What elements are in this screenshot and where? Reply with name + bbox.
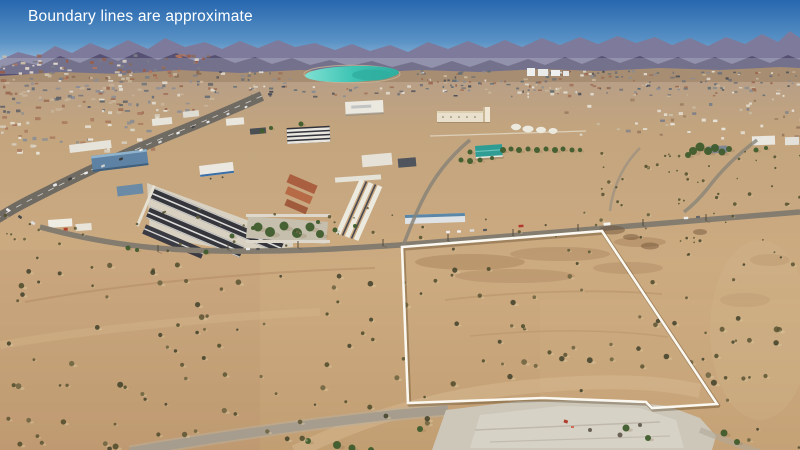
specks-town-left-lower-speck — [19, 93, 23, 95]
specks-town-near-left-speck — [34, 145, 37, 147]
specks-town-left-upper-speck — [173, 73, 177, 76]
shrub — [645, 228, 647, 230]
specks-town-far-speck — [550, 93, 554, 95]
shrub — [534, 364, 538, 368]
specks-town-far-speck — [216, 76, 219, 78]
specks-town-far-speck — [568, 95, 571, 98]
shrub — [263, 323, 266, 326]
specks-town-far-speck — [649, 74, 653, 76]
specks-town-far-speck — [272, 79, 276, 81]
specks-town-left-lower-speck — [163, 93, 168, 95]
shrub — [587, 357, 593, 363]
specks-town-far-speck — [522, 91, 524, 93]
specks-town-near-left-speck — [18, 137, 21, 139]
specks-houses-right-speck — [692, 112, 696, 115]
tree — [353, 224, 357, 228]
shrub — [222, 408, 227, 413]
specks-town-far-speck — [789, 80, 791, 82]
specks-town-far-speck — [570, 84, 574, 87]
tree — [623, 425, 630, 432]
specks-town-left-lower-speck — [138, 89, 142, 91]
shrub — [547, 350, 551, 354]
pond-deep-water — [352, 70, 392, 81]
shrub — [774, 167, 776, 169]
specks-houses-right-speck — [782, 134, 785, 137]
vehicle — [603, 222, 610, 225]
specks-town-left-upper-speck — [154, 69, 157, 72]
specks-town-left-lower-speck — [99, 99, 104, 101]
shrub — [196, 216, 199, 219]
specks-town-far-speck — [733, 72, 736, 73]
specks-town-far-speck — [752, 81, 755, 83]
specks-town-far-speck — [763, 95, 766, 97]
specks-houses-right-speck — [565, 111, 569, 114]
tree — [509, 147, 514, 152]
shrub — [325, 362, 330, 367]
specks-town-far-speck — [708, 87, 711, 90]
shrub — [117, 382, 123, 388]
shrub — [74, 227, 77, 230]
specks-town-near-left-speck — [2, 116, 7, 119]
specks-town-left-upper-speck — [127, 70, 131, 73]
specks-town-left-lower-speck — [156, 109, 158, 111]
shrub — [336, 300, 339, 303]
specks-town-left-upper-speck — [39, 70, 43, 73]
specks-town-far-speck — [263, 86, 265, 88]
specks-town-far-speck — [755, 72, 758, 74]
specks-town-far-speck — [302, 91, 305, 93]
tree — [734, 439, 740, 445]
specks-town-far-speck — [269, 91, 273, 93]
shrub — [762, 239, 764, 241]
shrub — [706, 372, 712, 378]
shrub — [687, 253, 690, 256]
shrub — [368, 281, 374, 287]
specks-houses-right-speck — [679, 112, 683, 115]
shrub — [733, 202, 737, 206]
red-debris — [571, 426, 574, 428]
shrub — [678, 203, 680, 205]
shrub — [265, 429, 269, 433]
specks-town-far-speck — [738, 73, 741, 74]
specks-houses-right-speck — [709, 103, 712, 106]
shrub — [179, 243, 182, 246]
shrub — [720, 327, 725, 332]
specks-town-left-lower-speck — [106, 87, 109, 90]
casino-tower — [551, 70, 560, 76]
shrub — [693, 242, 695, 244]
shrub — [59, 384, 62, 387]
specks-houses-right-speck — [747, 108, 750, 110]
specks-houses-right-speck — [749, 103, 752, 105]
specks-town-far-speck — [642, 85, 644, 86]
specks-town-left-upper-speck — [118, 74, 122, 77]
specks-town-near-left-speck — [85, 125, 91, 128]
shrub — [295, 230, 297, 232]
specks-town-left-lower-speck — [132, 95, 135, 97]
specks-town-near-left-speck — [50, 136, 56, 139]
shrub — [217, 344, 221, 348]
shrub — [353, 217, 355, 219]
shrub — [285, 436, 290, 441]
specks-town-far-speck — [545, 80, 548, 82]
tree — [561, 147, 566, 152]
tree — [570, 148, 575, 153]
mission-tower-shade — [483, 107, 485, 122]
shrub — [708, 165, 710, 167]
specks-town-far-speck — [528, 89, 530, 91]
specks-town-near-left-speck — [137, 138, 142, 141]
specks-houses-right-speck — [754, 100, 756, 102]
specks-town-far-speck — [712, 71, 715, 73]
specks-town-left-lower-speck — [163, 110, 167, 112]
specks-town-far-speck — [249, 89, 251, 91]
shrub — [664, 354, 670, 360]
shrub — [621, 178, 623, 180]
specks-town-left-lower-speck — [119, 81, 123, 83]
shrub — [136, 223, 139, 226]
specks-houses-right-speck — [664, 113, 667, 116]
shrub — [58, 271, 62, 275]
shrub — [33, 358, 36, 361]
shrub — [580, 289, 583, 292]
specks-town-left-lower-speck — [15, 93, 18, 95]
specks-town-far-speck — [504, 81, 506, 83]
shrub — [601, 193, 604, 196]
vehicle — [470, 229, 475, 232]
shrub — [607, 180, 610, 183]
specks-town-near-left-speck — [21, 112, 24, 114]
specks-town-far-speck — [557, 93, 560, 95]
specks-town-far-speck — [294, 89, 297, 90]
shrub — [685, 296, 688, 299]
specks-town-left-upper-speck — [33, 61, 37, 63]
specks-town-left-lower-speck — [94, 79, 99, 81]
specks-town-far-speck — [468, 90, 470, 92]
specks-town-near-left-speck — [33, 137, 37, 140]
specks-town-far-speck — [608, 73, 611, 74]
shrub — [747, 438, 751, 442]
specks-town-far-speck — [592, 79, 596, 81]
shrub — [713, 213, 715, 215]
specks-town-far-speck — [786, 72, 789, 74]
specks-town-near-left-speck — [17, 123, 21, 126]
shrub — [69, 361, 74, 366]
specks-town-left-lower-speck — [109, 84, 114, 87]
specks-houses-right-speck — [580, 134, 583, 136]
specks-houses-right-speck — [637, 131, 641, 134]
specks-town-far-speck — [249, 88, 251, 89]
shrub — [419, 236, 423, 240]
shrub — [747, 338, 752, 343]
specks-town-far-speck — [667, 94, 671, 95]
shrub — [738, 158, 741, 161]
specks-town-far-speck — [585, 73, 589, 75]
specks-town-far-speck — [559, 78, 562, 80]
mission-arch — [474, 116, 476, 118]
specks-town-far-speck — [591, 76, 594, 78]
shrub — [669, 155, 671, 157]
shrub — [510, 324, 513, 327]
specks-town-far-speck — [702, 74, 706, 76]
shrub — [37, 281, 40, 284]
specks-town-far-speck — [722, 89, 724, 91]
specks-houses-right-speck — [666, 124, 669, 126]
shrub — [588, 250, 591, 253]
specks-town-left-lower-speck — [44, 100, 49, 102]
specks-town-far-speck — [483, 71, 485, 73]
specks-town-left-lower-speck — [5, 82, 10, 84]
tree — [204, 250, 209, 255]
specks-town-left-upper-speck — [117, 69, 122, 71]
mission-arch — [466, 116, 468, 118]
specks-town-far-speck — [634, 91, 636, 93]
specks-town-near-left-speck — [62, 121, 68, 124]
specks-town-far-speck — [241, 78, 245, 81]
specks-town-far-speck — [691, 78, 695, 79]
specks-town-far-speck — [580, 74, 584, 76]
specks-town-far-speck — [606, 92, 608, 93]
shrub — [236, 329, 238, 331]
ground-stain — [693, 229, 707, 235]
vehicle — [483, 229, 487, 231]
shrub — [372, 231, 375, 234]
shrub — [166, 346, 169, 349]
specks-town-far-speck — [657, 72, 660, 74]
specks-town-far-speck — [364, 93, 367, 95]
specks-town-left-upper-speck — [37, 55, 42, 58]
shrub — [371, 338, 375, 342]
specks-town-far-speck — [454, 95, 458, 97]
tree — [704, 147, 712, 155]
specks-town-left-lower-speck — [1, 79, 6, 82]
specks-town-left-upper-speck — [21, 62, 26, 64]
specks-town-left-upper-speck — [90, 77, 93, 80]
specks-town-far-speck — [597, 87, 600, 89]
specks-houses-right-speck — [740, 109, 743, 111]
shrub — [653, 323, 658, 328]
shrub — [704, 332, 707, 335]
shrub — [644, 165, 647, 168]
shrub — [711, 380, 717, 386]
specks-town-left-lower-speck — [148, 101, 151, 104]
specks-town-left-upper-speck — [155, 77, 158, 79]
shrub — [452, 268, 457, 273]
specks-town-near-left-speck — [10, 122, 14, 125]
specks-town-left-upper-speck — [66, 60, 68, 63]
specks-town-far-speck — [550, 90, 554, 92]
specks-town-near-left-speck — [35, 117, 41, 120]
specks-town-far-speck — [656, 88, 660, 90]
specks-town-far-speck — [215, 91, 217, 93]
shrub — [164, 211, 166, 213]
specks-town-left-lower-speck — [96, 90, 101, 92]
specks-town-far-speck — [726, 77, 729, 79]
specks-houses-right-speck — [792, 110, 795, 112]
specks-town-left-upper-speck — [183, 54, 186, 56]
dirt-patch — [415, 254, 525, 270]
shrub — [366, 207, 368, 209]
specks-town-left-lower-speck — [111, 98, 116, 100]
specks-town-far-speck — [485, 89, 488, 90]
specks-town-left-lower-speck — [10, 93, 13, 96]
shrub — [194, 429, 198, 433]
specks-town-left-lower-speck — [197, 81, 200, 83]
specks-town-far-speck — [588, 73, 592, 75]
specks-town-left-lower-speck — [16, 110, 21, 113]
ground-stain — [641, 243, 659, 250]
shrub — [14, 238, 16, 240]
specks-town-left-lower-speck — [25, 85, 30, 87]
specks-town-far-speck — [420, 84, 423, 86]
specks-town-far-speck — [792, 83, 794, 84]
specks-town-left-lower-speck — [83, 101, 86, 103]
casino-tower — [563, 71, 569, 76]
specks-town-left-upper-speck — [90, 61, 93, 64]
specks-town-far-speck — [426, 88, 429, 89]
specks-town-far-speck — [269, 88, 273, 90]
debris — [588, 428, 592, 432]
shrub — [620, 204, 622, 206]
shrub — [175, 263, 180, 268]
specks-town-far-speck — [219, 71, 222, 73]
shrub — [7, 341, 11, 345]
specks-town-far-speck — [745, 87, 749, 89]
specks-town-far-speck — [456, 74, 458, 75]
specks-town-left-upper-speck — [39, 62, 43, 64]
specks-town-left-lower-speck — [88, 106, 91, 108]
specks-town-far-speck — [506, 84, 510, 85]
specks-houses-right-speck — [669, 114, 673, 116]
shrub — [421, 226, 424, 229]
specks-town-left-upper-speck — [48, 75, 52, 78]
specks-town-far-speck — [735, 91, 738, 92]
specks-town-far-speck — [521, 81, 524, 83]
specks-town-far-speck — [488, 71, 491, 73]
shrub — [715, 196, 718, 199]
shrub — [583, 212, 585, 214]
shrub — [91, 266, 94, 269]
tree — [544, 147, 549, 152]
shrub — [369, 318, 373, 322]
tree — [764, 146, 768, 150]
shrub — [107, 263, 112, 268]
shrub — [4, 214, 7, 217]
tree — [316, 230, 324, 238]
specks-town-left-upper-speck — [25, 67, 29, 70]
shrub — [763, 374, 767, 378]
shrub — [40, 441, 44, 445]
specks-town-left-upper-speck — [62, 67, 65, 69]
shrub — [16, 299, 19, 302]
specks-town-far-speck — [278, 72, 282, 74]
tree — [333, 441, 341, 449]
specks-houses-right-speck — [796, 126, 800, 128]
tree — [135, 248, 139, 252]
specks-town-far-speck — [716, 85, 720, 87]
shrub — [656, 163, 659, 166]
shrub — [773, 155, 776, 158]
specks-town-near-left-speck — [12, 143, 17, 145]
specks-town-near-left-speck — [36, 152, 39, 155]
shrub — [478, 294, 482, 298]
specks-town-left-upper-speck — [147, 60, 149, 62]
specks-town-far-speck — [312, 91, 316, 93]
shrub — [559, 356, 564, 361]
specks-town-left-lower-speck — [161, 103, 165, 106]
shrub — [320, 385, 325, 390]
shrub — [702, 149, 704, 151]
specks-houses-right-speck — [785, 111, 788, 114]
shrub — [61, 419, 66, 424]
shrub — [384, 414, 389, 419]
specks-town-far-speck — [254, 73, 256, 75]
specks-town-far-speck — [770, 82, 772, 84]
specks-town-far-speck — [557, 88, 560, 91]
specks-town-left-lower-speck — [62, 105, 65, 108]
specks-town-far-speck — [386, 92, 390, 95]
specks-town-left-upper-speck — [165, 58, 168, 60]
shrub — [609, 343, 612, 346]
specks-town-left-upper-speck — [3, 56, 7, 58]
specks-town-near-left-speck — [137, 112, 143, 115]
specks-town-far-speck — [538, 90, 542, 92]
specks-town-far-speck — [529, 85, 531, 88]
specks-town-left-lower-speck — [7, 111, 10, 113]
tree — [534, 147, 540, 153]
specks-town-far-speck — [214, 88, 217, 90]
specks-town-far-speck — [597, 72, 599, 74]
specks-town-left-upper-speck — [14, 64, 18, 66]
specks-town-far-speck — [754, 90, 757, 92]
shrub — [82, 233, 84, 235]
specks-town-far-speck — [455, 76, 457, 78]
specks-town-left-lower-speck — [78, 105, 81, 107]
specks-town-left-upper-speck — [126, 77, 130, 80]
specks-town-left-upper-speck — [192, 55, 196, 58]
specks-town-far-speck — [447, 79, 449, 81]
specks-town-far-speck — [628, 77, 632, 78]
specks-town-left-lower-speck — [142, 83, 147, 86]
shrub — [420, 292, 423, 295]
specks-town-left-upper-speck — [207, 56, 210, 58]
specks-town-left-lower-speck — [56, 108, 61, 111]
specks-town-far-speck — [756, 78, 759, 80]
shrub — [423, 396, 426, 399]
specks-town-far-speck — [684, 86, 687, 88]
specks-town-left-upper-speck — [195, 58, 199, 61]
shrub — [243, 224, 245, 226]
specks-town-far-speck — [769, 75, 772, 77]
shrub — [533, 295, 537, 299]
specks-houses-right-speck — [721, 128, 725, 131]
shrub — [6, 417, 10, 421]
shrub — [685, 172, 688, 175]
specks-town-far-speck — [633, 80, 635, 82]
dirt-patch — [455, 269, 575, 283]
specks-town-far-speck — [590, 84, 593, 86]
boundary-disclaimer-text: Boundary lines are approximate — [28, 8, 253, 26]
shrub — [640, 364, 644, 368]
specks-town-left-upper-speck — [178, 56, 183, 58]
shrub — [434, 279, 438, 283]
specks-town-left-upper-speck — [169, 75, 173, 77]
specks-town-left-upper-speck — [129, 63, 132, 65]
specks-town-far-speck — [720, 87, 723, 89]
specks-houses-right-speck — [660, 134, 663, 136]
specks-town-far-speck — [471, 76, 475, 78]
specks-houses-right-speck — [626, 130, 631, 133]
